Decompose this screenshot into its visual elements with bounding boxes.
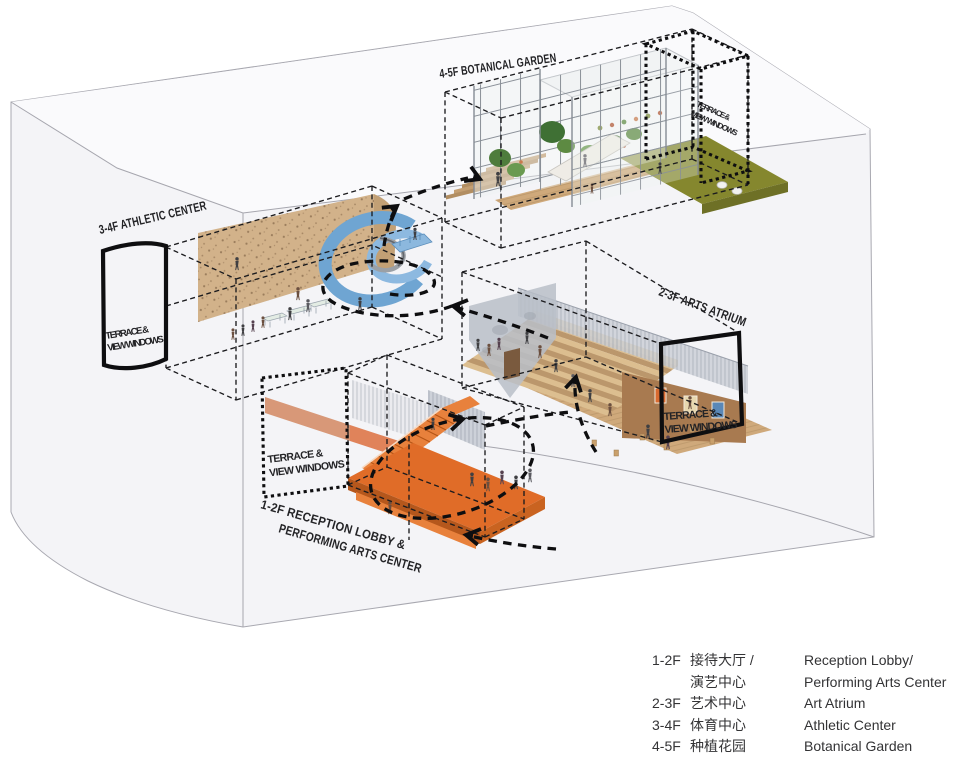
legend: 1-2F 接待大厅 / Reception Lobby/ 演艺中心 Perfor… bbox=[652, 650, 946, 758]
legend-zh: 艺术中心 bbox=[690, 693, 804, 715]
legend-floor: 2-3F bbox=[652, 693, 690, 715]
legend-zh: 种植花园 bbox=[690, 736, 804, 758]
legend-zh: 接待大厅 / bbox=[690, 650, 804, 672]
legend-en: Botanical Garden bbox=[804, 736, 946, 758]
legend-floor: 4-5F bbox=[652, 736, 690, 758]
legend-en: Art Atrium bbox=[804, 693, 946, 715]
legend-zh: 演艺中心 bbox=[690, 672, 804, 694]
legend-floor: 3-4F bbox=[652, 715, 690, 737]
legend-en: Performing Arts Center bbox=[804, 672, 946, 694]
legend-floor bbox=[652, 672, 690, 694]
diagram-canvas: TERRACE & VIEW WINDOWS 4-5F BOTANICAL GA… bbox=[0, 0, 960, 763]
legend-en: Athletic Center bbox=[804, 715, 946, 737]
terrace-pod bbox=[717, 182, 727, 189]
legend-floor: 1-2F bbox=[652, 650, 690, 672]
legend-zh: 体育中心 bbox=[690, 715, 804, 737]
axonometric-program-diagram: TERRACE & VIEW WINDOWS 4-5F BOTANICAL GA… bbox=[0, 0, 960, 763]
legend-en: Reception Lobby/ bbox=[804, 650, 946, 672]
